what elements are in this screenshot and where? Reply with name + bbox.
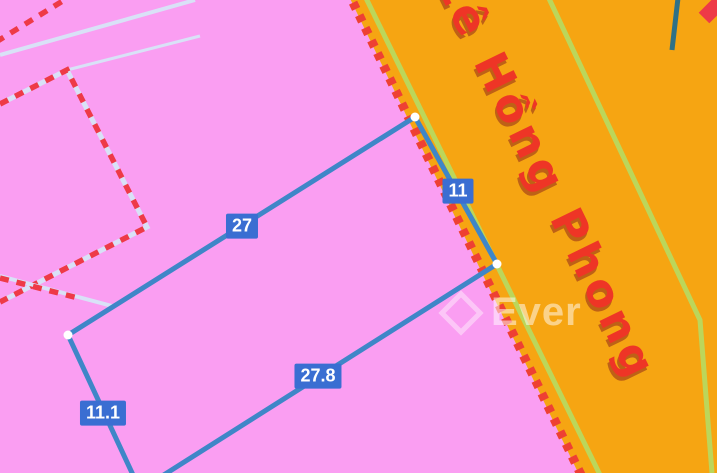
cadastral-map-view[interactable]: Lê Hồng Phong 27 11 27.8 11.1 Ever [0,0,717,473]
measurement-label-27[interactable]: 27 [226,214,258,239]
measurement-label-27-8[interactable]: 27.8 [294,364,341,389]
measurement-label-11-1[interactable]: 11.1 [80,401,126,426]
measurement-label-11[interactable]: 11 [442,179,473,204]
vertex-handle-left[interactable] [64,331,73,340]
vertex-handle-right[interactable] [493,260,502,269]
vertex-handle-top[interactable] [411,113,420,122]
